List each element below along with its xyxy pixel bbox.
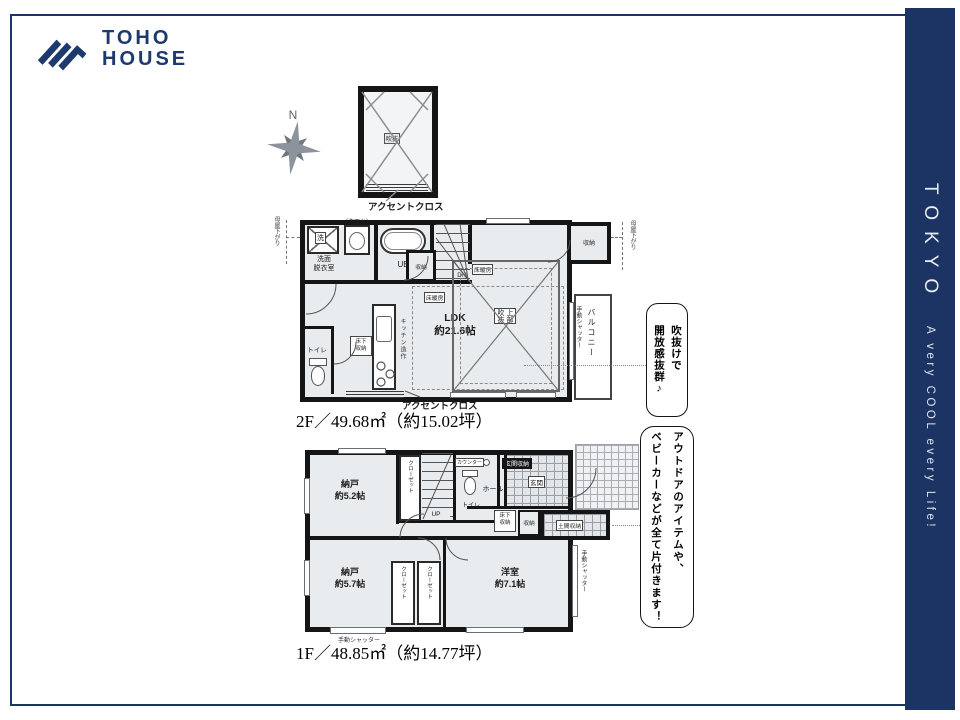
plan-linework <box>0 0 960 720</box>
stove-burners <box>377 362 394 386</box>
door-arcs <box>306 240 596 560</box>
flyer-page: TOKYO A very COOL every Life! TOHO HOUSE… <box>0 0 960 720</box>
